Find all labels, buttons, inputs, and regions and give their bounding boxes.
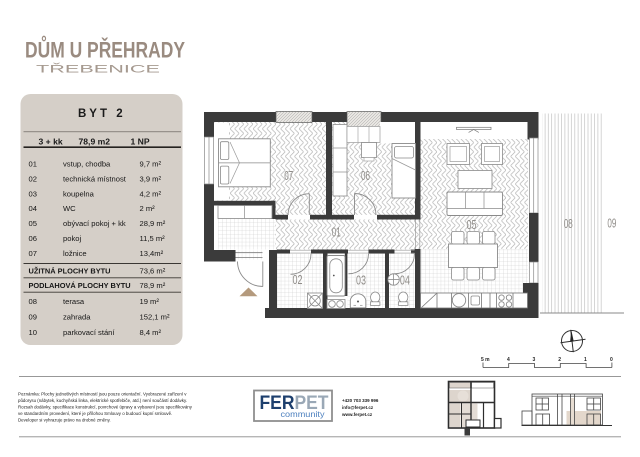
svg-text:06: 06 bbox=[29, 234, 37, 243]
svg-text:vstup, chodba: vstup, chodba bbox=[63, 160, 111, 169]
svg-text:08: 08 bbox=[29, 297, 37, 306]
svg-text:2: 2 bbox=[558, 357, 561, 363]
svg-text:půdorysu (nábytek, kuchyňská l: půdorysu (nábytek, kuchyňská linka, elek… bbox=[18, 398, 187, 403]
svg-text:09: 09 bbox=[607, 216, 616, 231]
svg-text:PODLAHOVÁ PLOCHY BYTU: PODLAHOVÁ PLOCHY BYTU bbox=[29, 281, 131, 290]
svg-text:5 m: 5 m bbox=[481, 357, 490, 363]
svg-text:05: 05 bbox=[467, 217, 477, 232]
svg-text:4: 4 bbox=[507, 357, 510, 363]
svg-text:28,9 m²: 28,9 m² bbox=[140, 219, 166, 228]
svg-text:3: 3 bbox=[533, 357, 536, 363]
svg-text:04: 04 bbox=[400, 272, 410, 287]
svg-text:pokoj: pokoj bbox=[63, 234, 81, 243]
svg-text:73,6 m²: 73,6 m² bbox=[140, 266, 166, 275]
svg-text:info@ferpet.cz: info@ferpet.cz bbox=[342, 405, 374, 410]
svg-text:8,4 m²: 8,4 m² bbox=[140, 328, 162, 337]
svg-text:DŮM U PŘEHRADY: DŮM U PŘEHRADY bbox=[25, 35, 185, 63]
svg-text:07: 07 bbox=[29, 249, 37, 258]
svg-text:4,2 m²: 4,2 m² bbox=[140, 189, 162, 198]
svg-text:+420 703 339 996: +420 703 339 996 bbox=[342, 398, 379, 403]
svg-text:1: 1 bbox=[584, 357, 587, 363]
svg-text:78,9 m²: 78,9 m² bbox=[140, 281, 166, 290]
svg-text:04: 04 bbox=[29, 204, 37, 213]
svg-text:ve standardním provedení, kter: ve standardním provedení, které je přílo… bbox=[18, 411, 172, 416]
svg-text:parkovací stání: parkovací stání bbox=[63, 328, 115, 337]
svg-text:03: 03 bbox=[29, 189, 37, 198]
svg-text:05: 05 bbox=[29, 219, 37, 228]
svg-text:78,9 m2: 78,9 m2 bbox=[79, 137, 111, 147]
svg-text:obývací pokoj + kk: obývací pokoj + kk bbox=[63, 219, 126, 228]
svg-text:Developer si vyhrazuje právo n: Developer si vyhrazuje právo na drobné z… bbox=[18, 417, 111, 422]
svg-text:13,4m²: 13,4m² bbox=[140, 249, 164, 258]
svg-text:06: 06 bbox=[361, 168, 370, 183]
svg-text:0: 0 bbox=[610, 357, 613, 363]
svg-text:3,9 m²: 3,9 m² bbox=[140, 174, 162, 183]
svg-text:07: 07 bbox=[284, 168, 293, 183]
svg-text:9,7 m²: 9,7 m² bbox=[140, 160, 162, 169]
svg-text:terasa: terasa bbox=[63, 297, 85, 306]
svg-text:09: 09 bbox=[29, 312, 37, 321]
svg-text:01: 01 bbox=[29, 160, 37, 169]
svg-text:10: 10 bbox=[29, 328, 37, 337]
svg-text:02: 02 bbox=[293, 272, 303, 287]
svg-text:11,5 m²: 11,5 m² bbox=[140, 234, 166, 243]
svg-text:2 m²: 2 m² bbox=[140, 204, 156, 213]
svg-text:www.ferpet.cz: www.ferpet.cz bbox=[341, 412, 373, 417]
svg-text:WC: WC bbox=[63, 204, 76, 213]
svg-text:technická místnost: technická místnost bbox=[63, 174, 127, 183]
svg-text:02: 02 bbox=[29, 174, 37, 183]
svg-text:152,1 m²: 152,1 m² bbox=[140, 312, 170, 321]
svg-text:08: 08 bbox=[564, 216, 573, 231]
svg-text:koupelna: koupelna bbox=[63, 189, 95, 198]
svg-text:TŘEBENICE: TŘEBENICE bbox=[36, 63, 160, 76]
svg-text:Rozsah dodávky, specifikace ko: Rozsah dodávky, specifikace konstrukcí, … bbox=[18, 404, 193, 409]
svg-text:19 m²: 19 m² bbox=[140, 297, 160, 306]
svg-text:3 + kk: 3 + kk bbox=[39, 137, 63, 147]
svg-text:ložnice: ložnice bbox=[63, 249, 87, 258]
svg-text:03: 03 bbox=[356, 272, 366, 287]
svg-text:zahrada: zahrada bbox=[63, 312, 91, 321]
svg-text:community: community bbox=[281, 409, 326, 419]
svg-text:BYT 2: BYT 2 bbox=[78, 108, 126, 120]
svg-text:Poznámka: Plochy jednotlivých: Poznámka: Plochy jednotlivých místností … bbox=[18, 391, 187, 396]
svg-text:1 NP: 1 NP bbox=[131, 137, 150, 147]
svg-text:UŽITNÁ PLOCHY BYTU: UŽITNÁ PLOCHY BYTU bbox=[29, 266, 111, 275]
svg-text:01: 01 bbox=[332, 225, 341, 240]
